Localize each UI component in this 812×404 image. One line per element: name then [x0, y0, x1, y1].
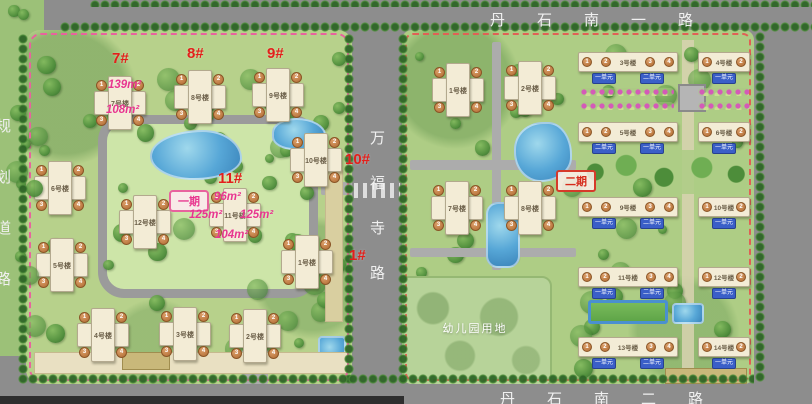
unit-circle: 2: [600, 342, 610, 352]
phase-building-9: 9号楼1234: [252, 68, 304, 122]
flower-bed: [580, 88, 674, 96]
unit-circle: 1: [702, 57, 712, 67]
building-label: 2号楼: [229, 332, 281, 342]
phase-building-10: 10号楼1234: [290, 133, 342, 187]
phase2-building-5: 125号楼34: [578, 122, 678, 142]
phase-building-1: 1号楼1234: [432, 63, 484, 117]
road-label-top: 丹石南一路: [490, 9, 725, 30]
phase-building-1: 1号楼1234: [281, 235, 333, 289]
unit-circle: 1: [582, 272, 592, 282]
treeline: [90, 0, 812, 7]
tree: [262, 176, 276, 190]
kindergarten-label: 幼儿园用地: [402, 320, 550, 336]
unit-circle: 2: [601, 57, 611, 67]
flower-bed: [580, 102, 674, 110]
unit-circle: 1: [582, 202, 592, 212]
unit-circle: 3: [645, 202, 655, 212]
unit-circle: 1: [96, 80, 107, 91]
unit-circle: 4: [664, 272, 674, 282]
unit-circle: 2: [158, 199, 169, 210]
unit-circle: 4: [543, 220, 554, 231]
tree: [633, 178, 652, 197]
unit-circle: 3: [231, 348, 242, 359]
unit-circle: 4: [664, 127, 674, 137]
building-number-label: 10#: [345, 151, 370, 168]
phase-building-5: 5号楼1234: [36, 238, 88, 292]
unit-circle: 2: [736, 272, 746, 282]
building-label: 4号楼: [716, 57, 733, 67]
area-label: 108m²: [106, 104, 139, 116]
unit-circle: 1: [79, 312, 90, 323]
unit-circle: 2: [320, 239, 331, 250]
unit-circle: 1: [38, 242, 49, 253]
building-number-label: 8#: [187, 45, 204, 62]
unit-circle: 4: [73, 200, 84, 211]
unit-circle: 2: [736, 342, 746, 352]
building-label: 5号楼: [620, 127, 637, 137]
unit-circle: 1: [433, 185, 444, 196]
unit-circle: 3: [506, 100, 517, 111]
building-label: 1号楼: [432, 86, 484, 96]
building-label: 11号楼: [618, 272, 638, 282]
unit-circle: 4: [116, 347, 127, 358]
unit-circle: 1: [506, 185, 517, 196]
phase2-building-10: 110号楼2: [698, 197, 750, 217]
tree: [28, 127, 48, 147]
unit-circle: 4: [268, 348, 279, 359]
unit-circle: 2: [291, 72, 302, 83]
building-label: 8号楼: [504, 204, 556, 214]
phase-building-2: 2号楼1234: [504, 61, 556, 115]
unit-circle: 4: [158, 234, 169, 245]
phase2-building-6: 16号楼2: [698, 122, 750, 142]
road-label-left: 规划道路: [0, 118, 13, 322]
building-label: 7号楼: [431, 204, 483, 214]
unit-circle: 1: [161, 311, 172, 322]
phase2-building-3: 123号楼34: [578, 52, 678, 72]
unit-circle: 4: [543, 100, 554, 111]
unit-circle: 2: [736, 127, 746, 137]
kindergarten-parcel: 幼儿园用地: [402, 276, 552, 384]
unit-label: 二单元: [640, 73, 664, 84]
unit-circle: 4: [329, 172, 340, 183]
unit-label: 一单元: [640, 143, 664, 154]
tree: [415, 52, 424, 61]
building-number-label: 11#: [218, 170, 242, 187]
building-label: 4号楼: [77, 331, 129, 341]
building-number-label: 9#: [267, 45, 284, 62]
unit-circle: 3: [121, 234, 132, 245]
treeline: [344, 34, 354, 384]
unit-circle: 4: [664, 57, 674, 67]
unit-circle: 3: [292, 172, 303, 183]
unit-circle: 4: [664, 202, 674, 212]
tree: [46, 324, 65, 343]
unit-circle: 1: [121, 199, 132, 210]
phase-building-8: 8号楼1234: [504, 181, 556, 235]
unit-circle: 1: [36, 165, 47, 176]
building-label: 3号楼: [620, 57, 637, 67]
building-label: 12号楼: [119, 218, 171, 228]
phase2-label: 二期: [556, 170, 596, 192]
unit-circle: 3: [645, 57, 655, 67]
unit-circle: 2: [329, 137, 340, 148]
tree: [450, 118, 460, 128]
unit-circle: 3: [506, 220, 517, 231]
unit-circle: 1: [582, 57, 592, 67]
phase2-building-12: 112号楼2: [698, 267, 750, 287]
flower-bed: [698, 102, 750, 110]
unit-circle: 3: [434, 102, 445, 113]
unit-circle: 3: [646, 342, 656, 352]
tree: [247, 279, 268, 300]
tree: [616, 218, 637, 239]
area-label: 96m²: [214, 191, 241, 203]
unit-circle: 1: [702, 202, 712, 212]
unit-circle: 2: [75, 242, 86, 253]
unit-label: 一单元: [592, 218, 616, 229]
phase-building-2: 2号楼1234: [229, 309, 281, 363]
area-label: 104m²: [215, 229, 248, 241]
unit-label: 一单元: [592, 73, 616, 84]
unit-circle: 3: [254, 107, 265, 118]
unit-circle: 3: [96, 115, 107, 126]
unit-circle: 1: [582, 342, 592, 352]
tree: [714, 321, 731, 338]
tree: [39, 145, 50, 156]
lap-pool: [588, 300, 668, 324]
unit-circle: 2: [601, 127, 611, 137]
phase-building-12: 12号楼1234: [119, 195, 171, 249]
unit-circle: 4: [664, 342, 674, 352]
unit-circle: 4: [198, 346, 209, 357]
unit-circle: 1: [702, 342, 712, 352]
unit-circle: 3: [645, 127, 655, 137]
treeline: [28, 374, 754, 384]
unit-circle: 4: [471, 102, 482, 113]
building-label: 13号楼: [618, 342, 638, 352]
unit-circle: 2: [248, 192, 259, 203]
unit-label: 二单元: [640, 288, 664, 299]
phase-building-7: 7号楼1234: [431, 181, 483, 235]
building-label: 14号楼: [714, 342, 734, 352]
site-plan: 7号楼12348号楼12349号楼123410号楼12346号楼123412号楼…: [0, 0, 812, 404]
phase-building-4: 4号楼1234: [77, 308, 129, 362]
building-label: 9号楼: [252, 91, 304, 101]
unit-circle: 2: [471, 67, 482, 78]
treeline: [398, 34, 408, 384]
unit-circle: 2: [213, 74, 224, 85]
tree: [684, 47, 699, 62]
unit-label: 二单元: [592, 143, 616, 154]
phase2-building-13: 1213号楼34: [578, 337, 678, 357]
treeline: [18, 34, 28, 384]
unit-circle: 2: [116, 312, 127, 323]
unit-circle: 2: [268, 313, 279, 324]
unit-label: 一单元: [712, 358, 736, 369]
building-label: 8号楼: [174, 93, 226, 103]
building-label: 6号楼: [716, 127, 733, 137]
unit-circle: 4: [133, 115, 144, 126]
tree: [26, 180, 43, 197]
unit-circle: 1: [582, 127, 592, 137]
unit-circle: 1: [702, 127, 712, 137]
unit-circle: 4: [75, 277, 86, 288]
area-label: 125m²: [189, 209, 222, 221]
road-label-bottom: 丹石南二路: [500, 388, 735, 404]
unit-circle: 1: [292, 137, 303, 148]
building-label: 2号楼: [504, 84, 556, 94]
building-number-label: 7#: [112, 50, 129, 67]
unit-circle: 4: [213, 109, 224, 120]
unit-circle: 2: [470, 185, 481, 196]
building-label: 9号楼: [620, 202, 637, 212]
unit-circle: 2: [600, 272, 610, 282]
unit-label: 一单元: [712, 218, 736, 229]
image-edge-shadow: [0, 396, 404, 404]
unit-label: 一单元: [592, 358, 616, 369]
tree: [300, 186, 314, 200]
pool: [672, 303, 704, 324]
flower-bed: [698, 88, 750, 96]
phase2-parcel: 幼儿园用地 1号楼12342号楼12347号楼12348号楼1234123号楼3…: [402, 30, 754, 384]
treeline: [755, 32, 765, 382]
unit-circle: 1: [434, 67, 445, 78]
phase-building-3: 3号楼1234: [159, 307, 211, 361]
tree: [37, 56, 55, 74]
building-label: 5号楼: [36, 261, 88, 271]
building-label: 12号楼: [714, 272, 734, 282]
building-label: 10号楼: [290, 156, 342, 166]
phase2-building-9: 129号楼34: [578, 197, 678, 217]
unit-circle: 1: [702, 272, 712, 282]
area-label: 139m²: [108, 79, 141, 91]
unit-circle: 1: [283, 239, 294, 250]
phase2-building-11: 1211号楼34: [578, 267, 678, 287]
unit-circle: 2: [736, 57, 746, 67]
unit-circle: 2: [601, 202, 611, 212]
unit-label: 一单元: [712, 143, 736, 154]
building-number-label: 1#: [349, 247, 366, 264]
tree: [475, 140, 491, 156]
unit-circle: 1: [506, 65, 517, 76]
unit-circle: 4: [320, 274, 331, 285]
unit-circle: 2: [543, 65, 554, 76]
phase-building-8: 8号楼1234: [174, 70, 226, 124]
unit-circle: 4: [248, 227, 259, 238]
unit-circle: 1: [231, 313, 242, 324]
phase2-building-4: 14号楼2: [698, 52, 750, 72]
phase2-building-14: 114号楼2: [698, 337, 750, 357]
unit-circle: 3: [433, 220, 444, 231]
tree: [103, 260, 114, 271]
unit-circle: 4: [470, 220, 481, 231]
building-label: 3号楼: [159, 330, 211, 340]
tree: [598, 249, 609, 260]
unit-circle: 2: [73, 165, 84, 176]
unit-label: 二单元: [640, 218, 664, 229]
unit-circle: 3: [283, 274, 294, 285]
unit-circle: 3: [38, 277, 49, 288]
building-label: 10号楼: [714, 202, 734, 212]
tree: [43, 78, 61, 96]
unit-circle: 3: [646, 272, 656, 282]
unit-label: 一单元: [592, 288, 616, 299]
unit-label: 二单元: [640, 358, 664, 369]
unit-circle: 1: [176, 74, 187, 85]
unit-circle: 4: [291, 107, 302, 118]
unit-circle: 3: [176, 109, 187, 120]
tree: [18, 9, 30, 21]
unit-label: 一单元: [712, 73, 736, 84]
unit-circle: 2: [198, 311, 209, 322]
hedge-garden: [578, 150, 750, 194]
unit-circle: 3: [36, 200, 47, 211]
tree: [265, 154, 274, 163]
building-label: 1号楼: [281, 258, 333, 268]
area-label: 125m²: [240, 209, 273, 221]
unit-circle: 1: [254, 72, 265, 83]
unit-circle: 2: [736, 202, 746, 212]
unit-circle: 2: [543, 185, 554, 196]
tree: [278, 311, 297, 330]
unit-circle: 3: [79, 347, 90, 358]
unit-label: 一单元: [712, 288, 736, 299]
unit-circle: 3: [161, 346, 172, 357]
tree: [294, 338, 304, 348]
